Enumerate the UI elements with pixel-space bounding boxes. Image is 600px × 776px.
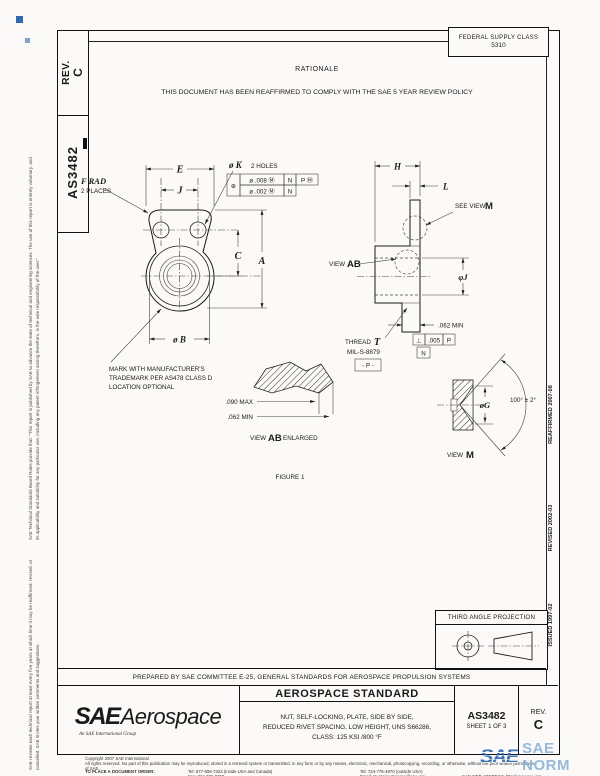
rev-box: REV. C xyxy=(57,30,89,116)
perpendicularity-frame: ⊥ .005 P N xyxy=(413,334,455,358)
see-view-label: SEE VIEW xyxy=(455,203,485,210)
blue-artifact-square xyxy=(25,38,30,43)
rationale-top-rule xyxy=(88,41,448,42)
sae-norm-name: SAE NORM xyxy=(522,740,600,774)
document-page: SAE Technical Standards Board Rules prov… xyxy=(0,0,600,776)
third-angle-projection-box: THIRD ANGLE PROJECTION xyxy=(435,610,548,670)
fcf-r2-tolerance: ø .002 Ⓜ xyxy=(249,188,274,196)
reaffirmed-date: REAFFIRMED 2007-08 xyxy=(548,357,554,472)
fsc-value: 5310 xyxy=(491,42,505,49)
sae-watermark-logo: SAE xyxy=(480,746,518,769)
fcf-r1-datum2: P Ⓜ xyxy=(301,177,313,185)
inner-right-rule xyxy=(546,55,547,685)
f-rad-callout: F RAD 2 PLACES xyxy=(80,176,148,213)
perp-value: .005 xyxy=(428,338,441,345)
doc-number: AS3482 xyxy=(468,710,506,722)
standard-title-cell: AEROSPACE STANDARD NUT, SELF-LOCKING, PL… xyxy=(240,686,455,754)
view-ab-word: VIEW xyxy=(329,261,345,268)
rev-cell-value: C xyxy=(534,717,543,732)
view-ab-enlarged-letters: AB xyxy=(268,433,282,444)
rev-cell-label: REV. xyxy=(531,709,547,716)
position-feature-control-frame: ⊕ ø .008 Ⓜ N P Ⓜ ø .002 Ⓜ N xyxy=(227,174,318,196)
view-ab-enlarged-suffix: ENLARGED xyxy=(283,435,318,442)
dim-062-min-label: .062 MIN xyxy=(227,414,253,421)
perp-datum: P xyxy=(447,338,451,345)
see-view-m-callout: SEE VIEW M xyxy=(426,201,493,225)
angle-label: 100° ± 2° xyxy=(510,396,536,404)
thread-callout: THREAD T MIL-S-8879 - P - xyxy=(345,308,407,371)
standard-title-line2: REDUCED RIVET SPACING, LOW HEIGHT, UNS S… xyxy=(263,723,431,733)
k-holes-note: 2 HOLES xyxy=(251,163,278,170)
left-margin-disclaimer-1: SAE Technical Standards Board Rules prov… xyxy=(27,154,42,540)
dim-b-label: ø B xyxy=(172,335,186,345)
dim-a-label: A xyxy=(258,256,266,267)
sheet-number: SHEET 1 OF 3 xyxy=(467,724,507,730)
view-ab-letters: AB xyxy=(347,259,361,270)
fcf-r1-datum1: N xyxy=(288,178,292,185)
dim-j-label: J xyxy=(177,186,184,197)
rationale-body: THIS DOCUMENT HAS BEEN REAFFIRMED TO COM… xyxy=(88,89,546,96)
projection-title: THIRD ANGLE PROJECTION xyxy=(436,611,547,625)
blue-artifact-square xyxy=(16,16,23,23)
aerospace-logo-text: Aerospace xyxy=(121,704,222,730)
sae-logo-cell: SAE Aerospace An SAE International Group xyxy=(57,686,240,754)
standard-kind: AEROSPACE STANDARD xyxy=(240,686,454,702)
fsc-label: FEDERAL SUPPLY CLASS xyxy=(459,35,539,41)
dim-L: L xyxy=(392,181,449,198)
view-m-word: VIEW xyxy=(447,452,463,459)
datum-p: - P - xyxy=(362,363,374,370)
dim-phi-j-label: φJ xyxy=(458,272,468,282)
projection-symbol xyxy=(436,625,547,667)
dim-090-max-label: .090 MAX xyxy=(225,399,253,406)
marking-note: MARK WITH MANUFACTURER'S TRADEMARK PER A… xyxy=(109,309,213,391)
dim-J: J xyxy=(161,186,198,197)
see-view-m-letter: M xyxy=(485,201,493,212)
rev-label: REV. xyxy=(62,60,72,84)
fcf-r2-datum: N xyxy=(288,189,292,196)
perp-symbol: ⊥ xyxy=(416,338,421,345)
datum-n: N xyxy=(421,351,425,358)
federal-supply-class-box: FEDERAL SUPPLY CLASS 5310 xyxy=(448,27,549,57)
fcf-r1-tolerance: ø .008 Ⓜ xyxy=(249,177,274,185)
sae-logo: SAE xyxy=(75,703,120,731)
sae-norm-watermark: SAE SAE NORM xyxy=(480,740,600,774)
thread-word: THREAD xyxy=(345,339,371,346)
thread-spec: MIL-S-8879 xyxy=(347,349,380,356)
view-ab-enlarged-word: VIEW xyxy=(250,435,266,442)
f-rad-note: 2 PLACES xyxy=(81,188,111,195)
rationale-title: RATIONALE xyxy=(88,66,546,73)
logo-tagline: An SAE International Group xyxy=(79,732,136,737)
figure-caption: FIGURE 1 xyxy=(275,474,305,481)
revised-date: REVISED 2002-03 xyxy=(548,478,554,578)
dim-e-label: E xyxy=(176,165,184,176)
marking-note-line3: LOCATION OPTIONAL xyxy=(109,384,175,391)
prepared-by-text: PREPARED BY SAE COMMITTEE E-25, GENERAL … xyxy=(133,674,471,681)
k-holes-label: ø K xyxy=(228,160,243,170)
standard-title-line1: NUT, SELF-LOCKING, PLATE, SIDE BY SIDE, xyxy=(280,713,413,723)
issued-date: ISSUED 1997-02 xyxy=(548,582,554,668)
view-m: øG 100° ± 2° VIEW M xyxy=(437,354,536,461)
side-view-outline xyxy=(357,200,432,332)
left-margin-disclaimer-2: SAE reviews each technical report at lea… xyxy=(27,542,42,770)
view-ab-enlarged: .090 MAX .062 MIN VIEW AB ENLARGED xyxy=(225,362,333,444)
fcf-position-symbol: ⊕ xyxy=(231,183,236,190)
footer-order-label: TO PLACE A DOCUMENT ORDER: xyxy=(85,769,155,775)
dim-h-label: H xyxy=(393,162,402,172)
dim-c-label: C xyxy=(235,251,242,262)
marking-note-line2: TRADEMARK PER AS478 CLASS D xyxy=(109,375,213,382)
dim-l-label: L xyxy=(442,182,449,192)
standard-title-line3: CLASS: 125 KSI /800 °F xyxy=(312,733,382,743)
marking-note-line1: MARK WITH MANUFACTURER'S xyxy=(109,366,205,373)
prepared-by-strip: PREPARED BY SAE COMMITTEE E-25, GENERAL … xyxy=(57,668,546,686)
figure-1-drawing: E J F RAD 2 PLACES ø K 2 HOLES ⊕ ø .008 … xyxy=(57,138,546,498)
view-m-letter: M xyxy=(466,450,474,461)
dim-062-min-side: .062 MIN xyxy=(388,323,464,330)
dim-062-min-side-label: .062 MIN xyxy=(438,323,464,330)
dim-og-label: øG xyxy=(479,400,491,410)
rev-value: C xyxy=(72,68,84,77)
f-rad-label: F RAD xyxy=(80,176,106,186)
front-view-outline xyxy=(146,210,214,311)
thread-t-letter: T xyxy=(374,337,381,348)
